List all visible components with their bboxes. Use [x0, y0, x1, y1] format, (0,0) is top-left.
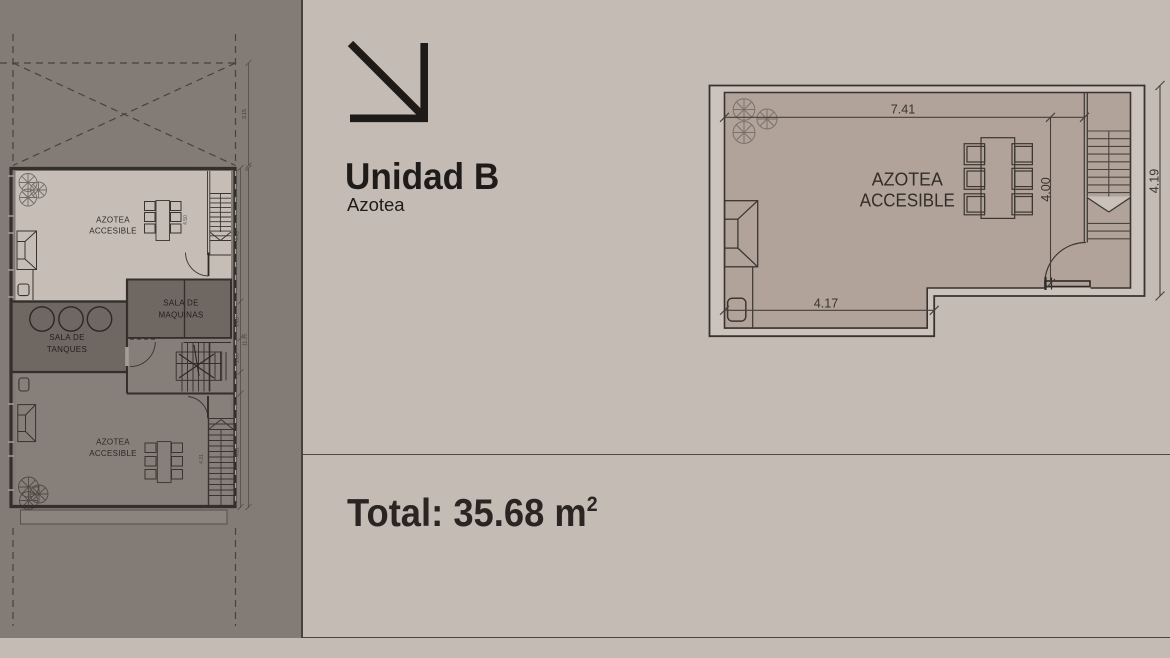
svg-text:4.31: 4.31 [199, 454, 205, 464]
svg-text:4.17: 4.17 [814, 297, 839, 311]
svg-text:1.20: 1.20 [235, 317, 241, 327]
svg-text:4.31: 4.31 [235, 447, 241, 457]
svg-text:4.49: 4.49 [235, 231, 241, 241]
svg-text:4.19: 4.19 [1148, 169, 1162, 194]
svg-text:AZOTEA: AZOTEA [872, 169, 944, 190]
svg-text:SALA DE: SALA DE [163, 299, 198, 308]
svg-text:SALA DE: SALA DE [49, 333, 84, 342]
svg-text:ACCESIBLE: ACCESIBLE [89, 227, 137, 236]
svg-text:7.41: 7.41 [891, 103, 916, 117]
svg-text:11.35: 11.35 [243, 334, 249, 346]
svg-text:3.15: 3.15 [242, 109, 248, 119]
svg-text:TANQUES: TANQUES [47, 345, 87, 354]
svg-text:MAQUINAS: MAQUINAS [158, 311, 203, 320]
svg-text:4.00: 4.00 [1039, 177, 1053, 202]
svg-text:AZOTEA: AZOTEA [96, 216, 130, 225]
svg-text:ACCESIBLE: ACCESIBLE [860, 190, 955, 211]
svg-text:ACCESIBLE: ACCESIBLE [89, 449, 137, 458]
svg-text:AZOTEA: AZOTEA [96, 438, 130, 447]
svg-text:1.88: 1.88 [235, 353, 241, 363]
svg-text:4.50: 4.50 [183, 215, 189, 225]
